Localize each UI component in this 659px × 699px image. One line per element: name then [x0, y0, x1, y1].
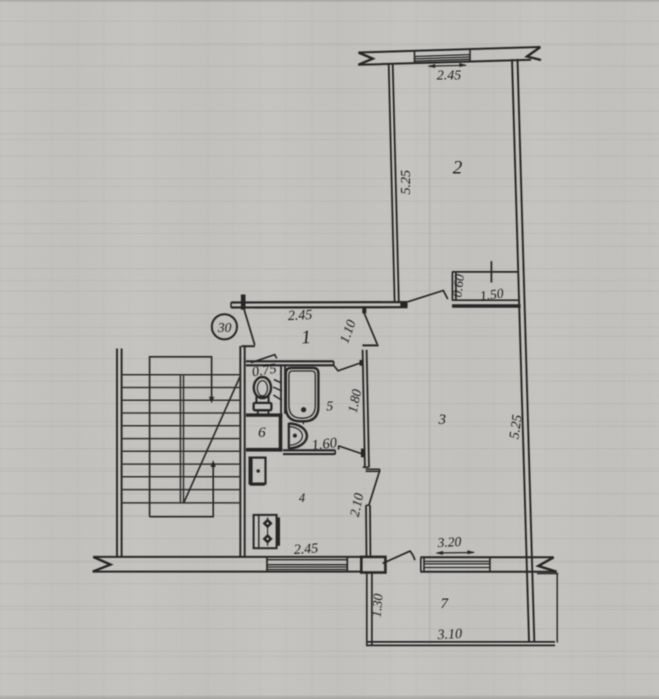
svg-text:1: 1 — [301, 327, 312, 349]
svg-text:1.60: 1.60 — [311, 435, 339, 454]
svg-text:2: 2 — [453, 158, 463, 179]
svg-text:3: 3 — [438, 412, 447, 428]
svg-text:2.45: 2.45 — [437, 68, 462, 83]
svg-text:2.45: 2.45 — [293, 541, 318, 558]
svg-text:3.10: 3.10 — [436, 627, 462, 643]
svg-text:0.60: 0.60 — [449, 273, 467, 298]
svg-text:6: 6 — [258, 425, 266, 441]
svg-text:5: 5 — [326, 400, 333, 415]
svg-text:3.20: 3.20 — [436, 534, 462, 550]
svg-text:1.30: 1.30 — [369, 593, 386, 618]
svg-text:4: 4 — [299, 491, 305, 505]
svg-text:2.45: 2.45 — [287, 308, 312, 324]
svg-text:30: 30 — [217, 320, 232, 335]
svg-text:5.25: 5.25 — [399, 170, 414, 195]
